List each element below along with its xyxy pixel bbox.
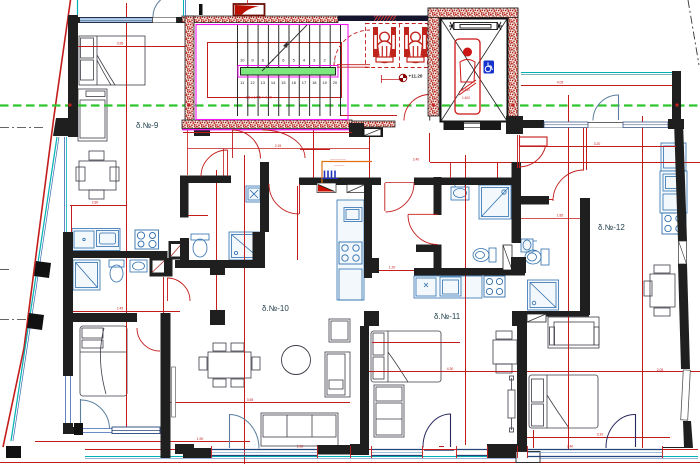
svg-text:δ.№-9: δ.№-9 [136, 121, 159, 130]
svg-text:2.80: 2.80 [92, 201, 99, 205]
svg-text:2.45: 2.45 [117, 307, 124, 311]
svg-text:2.40: 2.40 [413, 157, 420, 161]
svg-text:4.05: 4.05 [557, 81, 564, 85]
svg-text:17: 17 [302, 80, 307, 85]
svg-text:δ.№-11: δ.№-11 [434, 312, 461, 321]
svg-text:13: 13 [261, 80, 266, 85]
svg-text:12: 12 [250, 80, 255, 85]
svg-text:3.20: 3.20 [594, 142, 601, 146]
svg-text:10: 10 [240, 58, 245, 63]
svg-text:~~~~~~~~~: ~~~~~~~~~ [330, 157, 346, 161]
svg-text:3.10: 3.10 [597, 433, 604, 437]
svg-text:3.40: 3.40 [567, 445, 574, 449]
svg-text:3.95: 3.95 [117, 42, 124, 46]
svg-text:1.20: 1.20 [389, 266, 396, 270]
svg-text:2.90: 2.90 [297, 445, 304, 449]
svg-text:16: 16 [291, 80, 296, 85]
svg-text:1.400: 1.400 [462, 88, 470, 92]
svg-text:~~~~~~: ~~~~~~ [334, 164, 345, 168]
svg-text:19: 19 [322, 80, 327, 85]
svg-text:18: 18 [312, 80, 317, 85]
svg-text:14: 14 [271, 80, 276, 85]
svg-text:15: 15 [281, 80, 286, 85]
svg-text:28 x 17.5 = 4.90: 28 x 17.5 = 4.90 [246, 96, 272, 100]
svg-text:20: 20 [333, 80, 338, 85]
svg-text:2.05: 2.05 [657, 368, 664, 372]
svg-text:δ.№-12: δ.№-12 [598, 223, 625, 232]
svg-text:δ.№-10: δ.№-10 [262, 304, 289, 313]
svg-text:1.400: 1.400 [462, 96, 470, 100]
svg-text:2.15: 2.15 [275, 144, 282, 148]
svg-text:1.90: 1.90 [197, 437, 204, 441]
svg-text:1.85: 1.85 [557, 213, 564, 217]
svg-text:3.65: 3.65 [247, 398, 254, 402]
svg-text:4.30: 4.30 [447, 367, 454, 371]
svg-text:+11.20: +11.20 [409, 74, 423, 79]
